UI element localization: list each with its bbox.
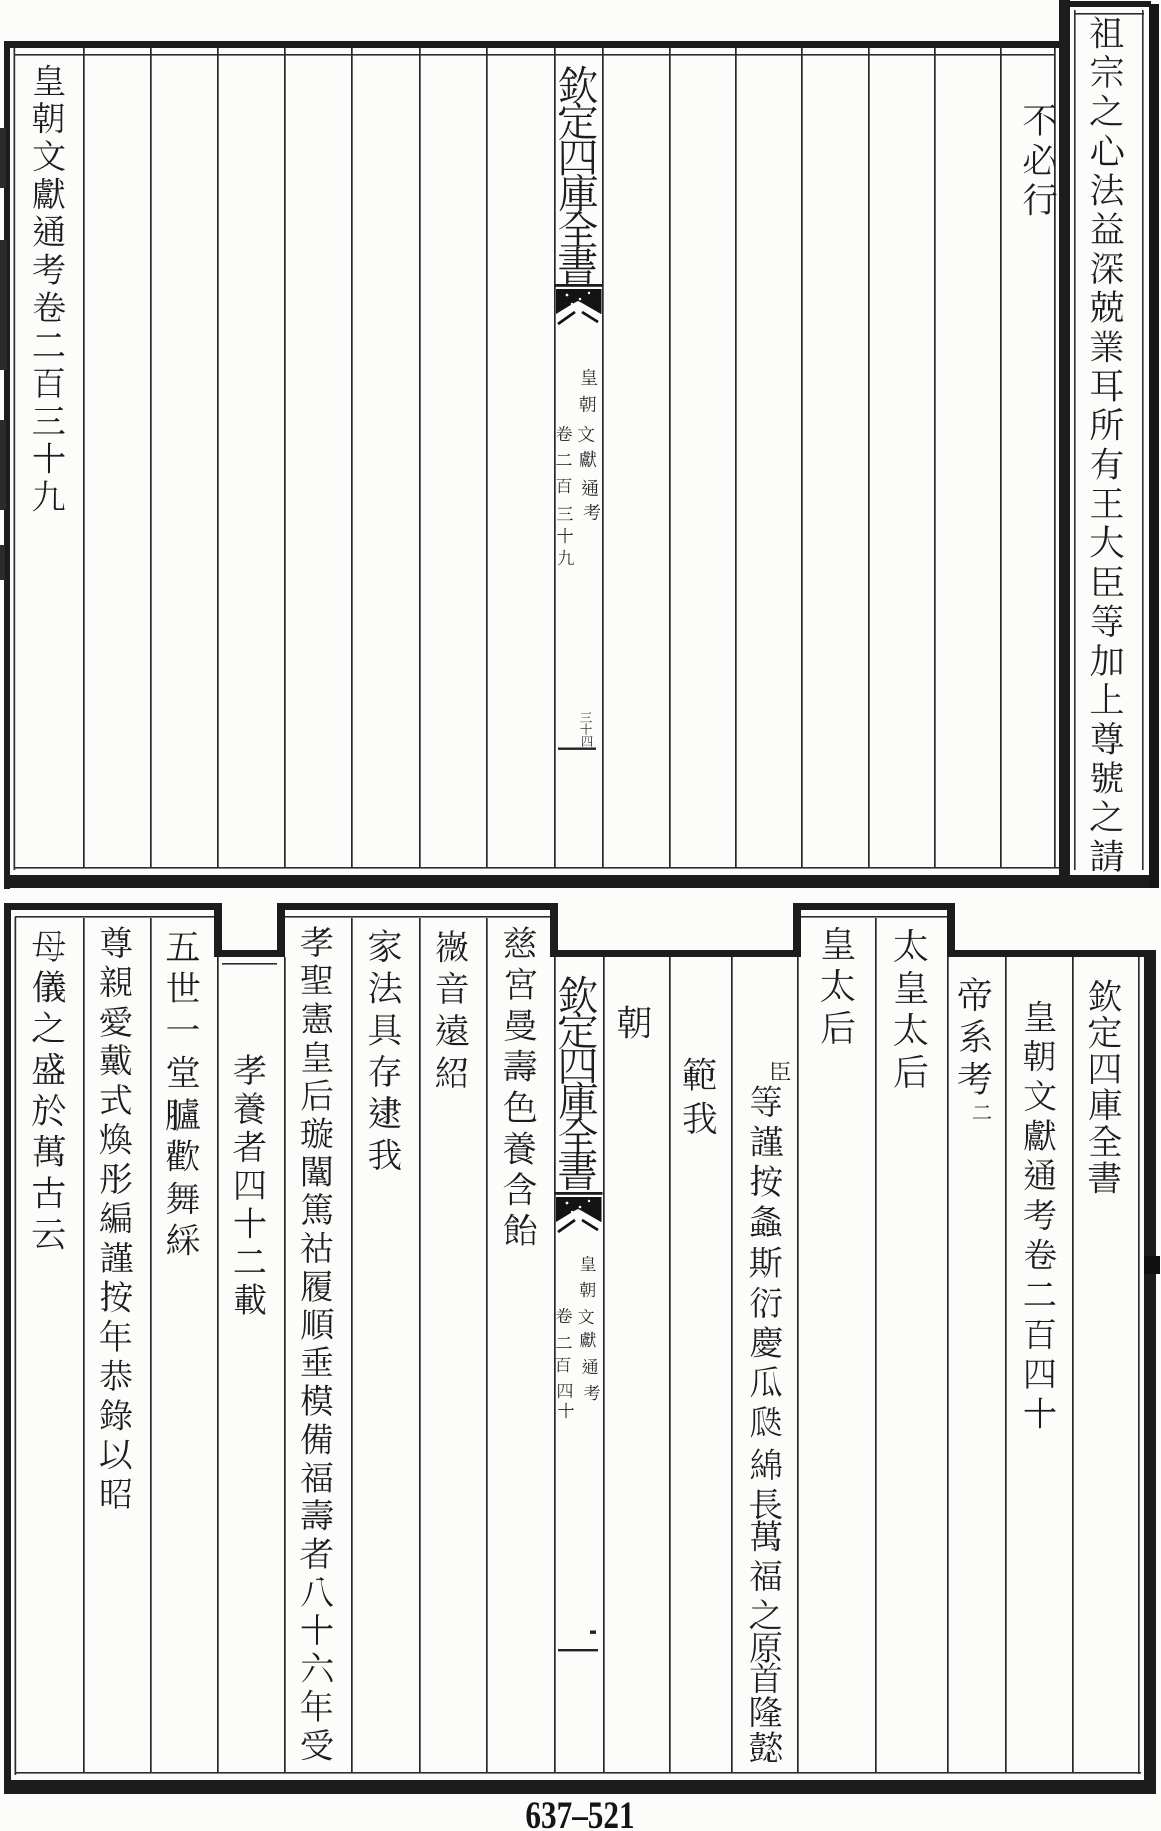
svg-text:637–521: 637–521 <box>525 1794 634 1831</box>
